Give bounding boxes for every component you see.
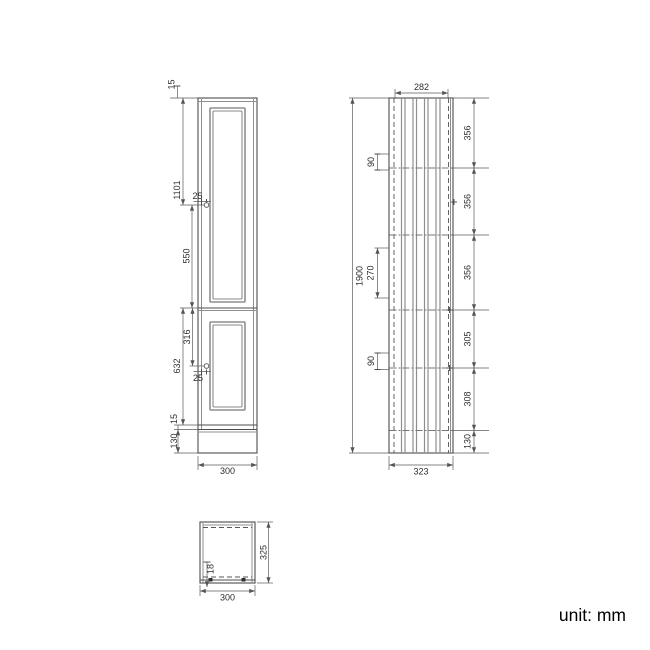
dim-top-depth: 325 (259, 545, 269, 560)
dim-side-section-1: 356 (463, 125, 473, 140)
unit-label: unit: mm (559, 605, 626, 625)
dim-side-hinge-bottom: 90 (366, 356, 376, 366)
top-view: 18 325 300 (200, 522, 273, 603)
side-shelf-lines (390, 168, 453, 431)
front-dimension-lines (170, 86, 257, 470)
dim-front-handle-inset-top: 25 (192, 191, 202, 201)
front-dimension-labels: 15 1101 25 550 316 632 25 15 130 300 (167, 79, 236, 476)
dim-side-section-6: 130 (463, 434, 473, 449)
dim-side-section-2: 356 (463, 194, 473, 209)
dim-front-lower-door: 632 (172, 358, 182, 373)
dim-front-top-frame: 15 (167, 79, 177, 89)
dim-front-handle-inset-bottom: 25 (193, 373, 203, 383)
dim-side-section-3: 356 (463, 265, 473, 280)
upper-door-knob (204, 203, 209, 208)
dim-front-plinth: 130 (169, 433, 179, 448)
upper-door-panel (210, 108, 245, 302)
dim-side-section-4: 305 (463, 331, 473, 346)
side-body-outline (389, 98, 453, 453)
dim-front-handle-top: 1101 (172, 180, 182, 199)
technical-drawing-page: 15 1101 25 550 316 632 25 15 130 300 (0, 0, 650, 650)
dim-side-mid-bracket: 270 (366, 265, 376, 280)
dim-side-depth-top: 282 (414, 82, 429, 92)
cabinet-dimension-drawing: 15 1101 25 550 316 632 25 15 130 300 (0, 0, 650, 650)
dim-side-section-5: 308 (463, 391, 473, 406)
dim-top-width: 300 (220, 593, 235, 603)
side-view: 282 1900 90 270 90 356 356 356 305 308 1… (349, 82, 489, 477)
lower-door-panel (210, 322, 245, 410)
front-carcass-outline (198, 98, 257, 453)
hinge-mark-left (209, 578, 213, 582)
dim-side-hinge-top: 90 (366, 157, 376, 167)
hinge-mark-right (242, 578, 246, 582)
dim-front-upper-panel: 550 (182, 248, 192, 263)
top-dimension-labels: 18 325 300 (206, 545, 269, 603)
dim-side-height: 1900 (355, 266, 365, 286)
dim-side-depth-bottom: 323 (413, 467, 428, 477)
dim-front-width: 300 (220, 466, 235, 476)
dim-front-lower-handle: 316 (182, 329, 192, 344)
dim-front-bottom-gap: 15 (169, 414, 179, 424)
lower-door-knob (204, 364, 209, 369)
dim-top-thickness: 18 (206, 564, 216, 574)
front-view: 15 1101 25 550 316 632 25 15 130 300 (167, 79, 258, 476)
